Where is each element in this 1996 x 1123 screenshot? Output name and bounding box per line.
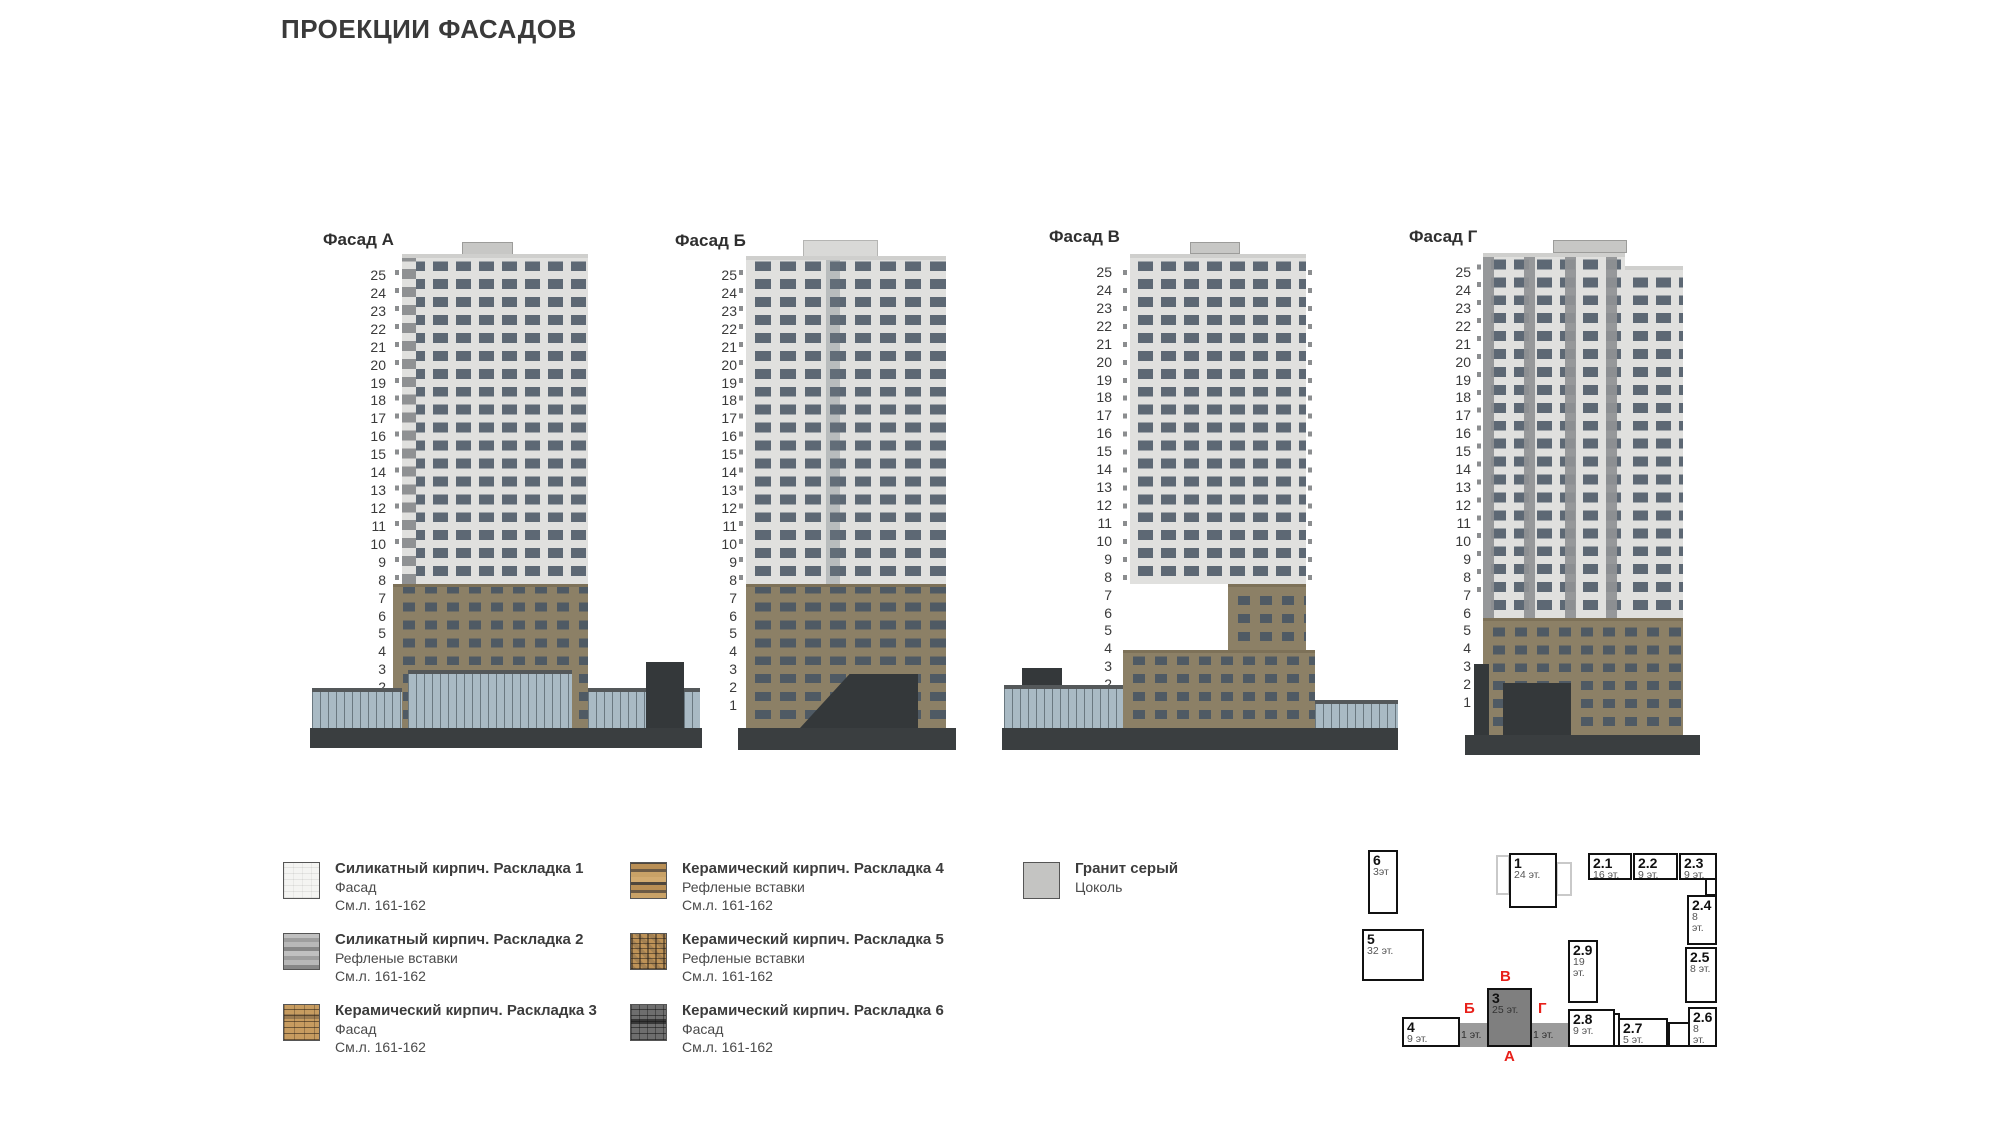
floor-number: 11 [1080, 515, 1112, 533]
floor-number: 15 [705, 446, 737, 464]
facade-v-balcony-ticks-right [1308, 262, 1312, 580]
site-plan-block-floors: 19 эт. [1573, 957, 1593, 978]
floor-number: 9 [1439, 551, 1471, 569]
floor-number: 22 [705, 321, 737, 339]
legend-item-line: Фасад [682, 1020, 944, 1038]
floor-numbers-facade-a: 2524232221201918171615141312111098765432… [354, 267, 386, 715]
site-plan-block-number: 6 [1373, 853, 1393, 867]
facade-g-gray-panel-columns [1483, 257, 1625, 618]
floor-number: 7 [1439, 587, 1471, 605]
legend-item-title: Керамический кирпич. Раскладка 3 [335, 1002, 597, 1020]
facade-projections-sheet: ПРОЕКЦИИ ФАСАДОВ Фасад А Фасад Б Фасад В… [0, 0, 1996, 1123]
floor-number: 13 [354, 482, 386, 500]
floor-number: 15 [1080, 443, 1112, 461]
floor-number: 13 [1080, 479, 1112, 497]
floor-number: 22 [354, 321, 386, 339]
site-plan-block-1: 124 эт. [1509, 853, 1557, 908]
floor-number: 7 [354, 590, 386, 608]
site-plan-block-number: 1 [1514, 856, 1552, 870]
site-plan-facade-marker-А: А [1504, 1048, 1515, 1065]
site-plan-block-number: 2.6 [1693, 1010, 1712, 1024]
facade-b-plinth [738, 728, 956, 750]
legend-swatch-s5 [630, 933, 667, 970]
floor-number: 3 [354, 661, 386, 679]
floor-number: 23 [1080, 300, 1112, 318]
floor-number: 18 [705, 392, 737, 410]
floor-number: 3 [1439, 658, 1471, 676]
floor-number: 1 [1439, 694, 1471, 712]
facade-v-label: Фасад В [1049, 227, 1120, 247]
floor-number: 22 [1080, 318, 1112, 336]
site-plan-block-number: 2.1 [1593, 856, 1627, 870]
floor-number: 18 [1080, 389, 1112, 407]
site-plan-block-floors: 16 эт. [1593, 870, 1627, 880]
floor-number: 6 [1439, 605, 1471, 623]
facade-g-plinth [1465, 735, 1700, 755]
floor-number: 19 [1080, 372, 1112, 390]
site-plan-facade-marker-В: В [1500, 968, 1511, 985]
floor-number: 23 [1439, 300, 1471, 318]
legend-item-text: Гранит серыйЦоколь [1075, 860, 1178, 896]
legend-swatch-s4 [630, 862, 667, 899]
site-plan-connector: 1 эт. [1532, 1023, 1568, 1047]
floor-number: 22 [1439, 318, 1471, 336]
facade-b-stair-core [826, 260, 840, 584]
legend-swatch-s2 [283, 933, 320, 970]
floor-number: 4 [1080, 640, 1112, 658]
floor-number: 19 [354, 375, 386, 393]
site-plan-block-5: 532 эт. [1362, 929, 1424, 981]
floor-number: 24 [705, 285, 737, 303]
floor-number: 4 [354, 643, 386, 661]
floor-number: 14 [1080, 461, 1112, 479]
legend-swatch-s7 [1023, 862, 1060, 899]
site-plan-block-number: 2.4 [1692, 898, 1712, 912]
site-plan-block-2.7: 2.75 эт. [1618, 1018, 1668, 1047]
site-plan-block-number: 5 [1367, 932, 1419, 946]
site-plan-block-3: 325 эт. [1487, 988, 1532, 1047]
site-plan-block-number: 4 [1407, 1020, 1455, 1034]
floor-number: 25 [1080, 264, 1112, 282]
floor-number: 23 [354, 303, 386, 321]
facade-v-brick-upper-right [1228, 584, 1306, 650]
legend-item-title: Силикатный кирпич. Раскладка 1 [335, 860, 583, 878]
site-plan-facade-marker-Г: Г [1538, 1000, 1547, 1017]
site-plan-block-number: 2.9 [1573, 943, 1593, 957]
facade-g-label: Фасад Г [1409, 227, 1477, 247]
legend-item-text: Силикатный кирпич. Раскладка 1ФасадСм.л.… [335, 860, 583, 914]
site-plan-block-2.4: 2.48 эт. [1687, 895, 1717, 945]
legend-item-line: Фасад [335, 1020, 597, 1038]
floor-number: 10 [354, 536, 386, 554]
legend-item-line: Рефленые вставки [335, 949, 583, 967]
facade-v-dark-box [1022, 668, 1062, 685]
facade-g-dark-strip [1474, 664, 1489, 735]
facade-v-brick-base [1123, 650, 1315, 728]
legend-item-line: Фасад [335, 878, 583, 896]
floor-number: 6 [1080, 605, 1112, 623]
site-plan-block-2.9: 2.919 эт. [1568, 940, 1598, 1003]
floor-number: 2 [1439, 676, 1471, 694]
floor-number: 24 [1080, 282, 1112, 300]
site-plan-ghost-outline [1556, 862, 1572, 896]
site-plan-block-floors: 25 эт. [1492, 1005, 1527, 1016]
legend-item-line: См.л. 161-162 [335, 896, 583, 914]
floor-number: 7 [1080, 587, 1112, 605]
site-plan-block-number: 2.5 [1690, 950, 1712, 964]
floor-number: 5 [1439, 622, 1471, 640]
legend-swatch-s6 [630, 1004, 667, 1041]
floor-number: 12 [1080, 497, 1112, 515]
facade-a-label: Фасад А [323, 230, 394, 250]
floor-number: 21 [705, 339, 737, 357]
floor-number: 17 [705, 410, 737, 428]
floor-number: 3 [1080, 658, 1112, 676]
floor-number: 21 [1439, 336, 1471, 354]
floor-number: 25 [354, 267, 386, 285]
floor-number: 14 [1439, 461, 1471, 479]
floor-number: 14 [705, 464, 737, 482]
floor-number: 10 [1080, 533, 1112, 551]
facade-v-balcony-ticks-left [1123, 262, 1127, 580]
facade-a-tower [402, 254, 588, 584]
floor-number: 20 [1439, 354, 1471, 372]
floor-number: 12 [1439, 497, 1471, 515]
floor-number: 24 [1439, 282, 1471, 300]
floor-number: 19 [1439, 372, 1471, 390]
floor-number: 17 [1080, 407, 1112, 425]
floor-number: 25 [1439, 264, 1471, 282]
site-plan-block-number: 2.2 [1638, 856, 1673, 870]
floor-number: 6 [705, 608, 737, 626]
site-plan-block-2.3: 2.39 эт. [1679, 853, 1717, 880]
floor-number: 14 [354, 464, 386, 482]
floor-number: 23 [705, 303, 737, 321]
floor-number: 12 [354, 500, 386, 518]
floor-number: 12 [705, 500, 737, 518]
site-plan-facade-marker-Б: Б [1464, 1000, 1475, 1017]
site-plan-block-6: 63эт [1368, 850, 1398, 914]
floor-number: 16 [1080, 425, 1112, 443]
facade-g-tower-right [1625, 266, 1683, 618]
legend-item-text: Керамический кирпич. Раскладка 3ФасадСм.… [335, 1002, 597, 1056]
site-plan-block-number: 2.3 [1684, 856, 1712, 870]
site-plan-passage [1668, 1022, 1690, 1047]
site-plan-block-number: 2.7 [1623, 1021, 1663, 1035]
facade-v-roofbox [1190, 242, 1240, 254]
floor-number: 8 [705, 572, 737, 590]
floor-number: 15 [354, 446, 386, 464]
facade-a-stylobate-left [312, 688, 402, 728]
site-plan-block-floors: 24 эт. [1514, 870, 1552, 881]
floor-number: 24 [354, 285, 386, 303]
site-plan-block-4: 49 эт. [1402, 1017, 1460, 1047]
site-plan-block-number: 3 [1492, 991, 1527, 1005]
legend-item-line: См.л. 161-162 [682, 896, 944, 914]
floor-number: 2 [705, 679, 737, 697]
floor-number: 15 [1439, 443, 1471, 461]
site-plan-block-floors: 32 эт. [1367, 946, 1419, 957]
site-plan-block-floors: 8 эт. [1692, 912, 1712, 933]
facade-a-glass-entrance [408, 670, 572, 728]
site-plan-passage [1705, 878, 1717, 896]
floor-number: 8 [1080, 569, 1112, 587]
floor-number: 16 [354, 428, 386, 446]
legend-item-line: Рефленые вставки [682, 949, 944, 967]
floor-number: 9 [354, 554, 386, 572]
legend-item-line: Цоколь [1075, 878, 1178, 896]
site-plan-block-floors: 9 эт. [1638, 870, 1673, 880]
site-plan-connector: 1 эт. [1460, 1023, 1487, 1047]
legend-item-title: Гранит серый [1075, 860, 1178, 878]
legend-item-title: Керамический кирпич. Раскладка 6 [682, 1002, 944, 1020]
facade-v-plinth [1002, 728, 1398, 750]
facade-b-tower [746, 256, 946, 584]
legend-item-line: См.л. 161-162 [682, 1038, 944, 1056]
site-plan-block-2.8: 2.89 эт. [1568, 1009, 1615, 1047]
floor-number: 21 [1080, 336, 1112, 354]
facade-g-dark-entrance [1503, 683, 1571, 735]
floor-number: 9 [705, 554, 737, 572]
floor-number: 3 [705, 661, 737, 679]
legend-item-text: Керамический кирпич. Раскладка 5Рефленые… [682, 931, 944, 985]
site-plan-block-number: 2.8 [1573, 1012, 1610, 1026]
legend-item-line: Рефленые вставки [682, 878, 944, 896]
floor-number: 17 [354, 410, 386, 428]
floor-number: 20 [354, 357, 386, 375]
floor-number: 16 [1439, 425, 1471, 443]
floor-number: 7 [705, 590, 737, 608]
site-plan-block-floors: 3эт [1373, 867, 1393, 878]
site-plan-block-2.5: 2.58 эт. [1685, 947, 1717, 1003]
facade-a-panel-column [402, 258, 416, 584]
floor-number: 4 [1439, 640, 1471, 658]
floor-numbers-facade-g: 2524232221201918171615141312111098765432… [1439, 264, 1471, 712]
site-plan-block-floors: 5 эт. [1623, 1035, 1663, 1046]
legend-item-text: Керамический кирпич. Раскладка 6ФасадСм.… [682, 1002, 944, 1056]
floor-number: 21 [354, 339, 386, 357]
floor-number: 20 [705, 357, 737, 375]
facade-v-glass-pavilion [1004, 685, 1123, 728]
page-title: ПРОЕКЦИИ ФАСАДОВ [281, 14, 577, 45]
floor-number: 4 [705, 643, 737, 661]
floor-number: 25 [705, 267, 737, 285]
floor-number: 5 [1080, 622, 1112, 640]
facade-a-plinth [310, 728, 702, 748]
facade-a-balcony-ticks [395, 262, 399, 580]
facade-v-tower [1130, 254, 1306, 584]
site-plan-block-floors: 8 эт. [1690, 964, 1712, 975]
floor-number: 9 [1080, 551, 1112, 569]
floor-number: 8 [1439, 569, 1471, 587]
floor-number: 6 [354, 608, 386, 626]
legend-item-line: См.л. 161-162 [335, 967, 583, 985]
legend-item-title: Керамический кирпич. Раскладка 4 [682, 860, 944, 878]
site-plan-block-2.6: 2.68 эт. [1688, 1007, 1717, 1047]
site-plan-block-floors: 9 эт. [1684, 870, 1712, 880]
floor-number: 10 [705, 536, 737, 554]
facade-v-stylobate-right [1315, 700, 1398, 728]
legend-item-line: См.л. 161-162 [682, 967, 944, 985]
floor-number: 11 [1439, 515, 1471, 533]
facade-g-roofbox [1553, 240, 1627, 253]
floor-number: 5 [354, 625, 386, 643]
floor-number: 17 [1439, 407, 1471, 425]
floor-number: 8 [354, 572, 386, 590]
site-plan-block-2.1: 2.116 эт. [1588, 853, 1632, 880]
facade-g-balcony-ticks [1477, 262, 1481, 592]
floor-number: 16 [705, 428, 737, 446]
site-plan-block-floors: 9 эт. [1407, 1034, 1455, 1045]
site-plan-block-floors: 9 эт. [1573, 1026, 1610, 1037]
floor-number: 18 [354, 392, 386, 410]
floor-number: 11 [354, 518, 386, 536]
floor-number: 11 [705, 518, 737, 536]
site-plan-block-floors: 8 эт. [1693, 1024, 1712, 1045]
floor-number: 18 [1439, 389, 1471, 407]
legend-item-line: См.л. 161-162 [335, 1038, 597, 1056]
legend-item-title: Керамический кирпич. Раскладка 5 [682, 931, 944, 949]
floor-number: 1 [705, 697, 737, 715]
floor-number: 13 [705, 482, 737, 500]
legend-swatch-s1 [283, 862, 320, 899]
facade-b-label: Фасад Б [675, 231, 746, 251]
legend-item-text: Силикатный кирпич. Раскладка 2Рефленые в… [335, 931, 583, 985]
legend-item-text: Керамический кирпич. Раскладка 4Рефленые… [682, 860, 944, 914]
facade-b-balcony-ticks [739, 262, 743, 580]
legend-swatch-s3 [283, 1004, 320, 1041]
floor-numbers-facade-v: 2524232221201918171615141312111098765432… [1080, 264, 1112, 712]
floor-number: 20 [1080, 354, 1112, 372]
site-plan-block-2.2: 2.29 эт. [1633, 853, 1678, 880]
floor-number: 19 [705, 375, 737, 393]
floor-number: 5 [705, 625, 737, 643]
floor-number: 13 [1439, 479, 1471, 497]
site-plan-ghost-outline [1496, 855, 1510, 895]
floor-number: 10 [1439, 533, 1471, 551]
floor-numbers-facade-b: 2524232221201918171615141312111098765432… [705, 267, 737, 715]
legend-item-title: Силикатный кирпич. Раскладка 2 [335, 931, 583, 949]
